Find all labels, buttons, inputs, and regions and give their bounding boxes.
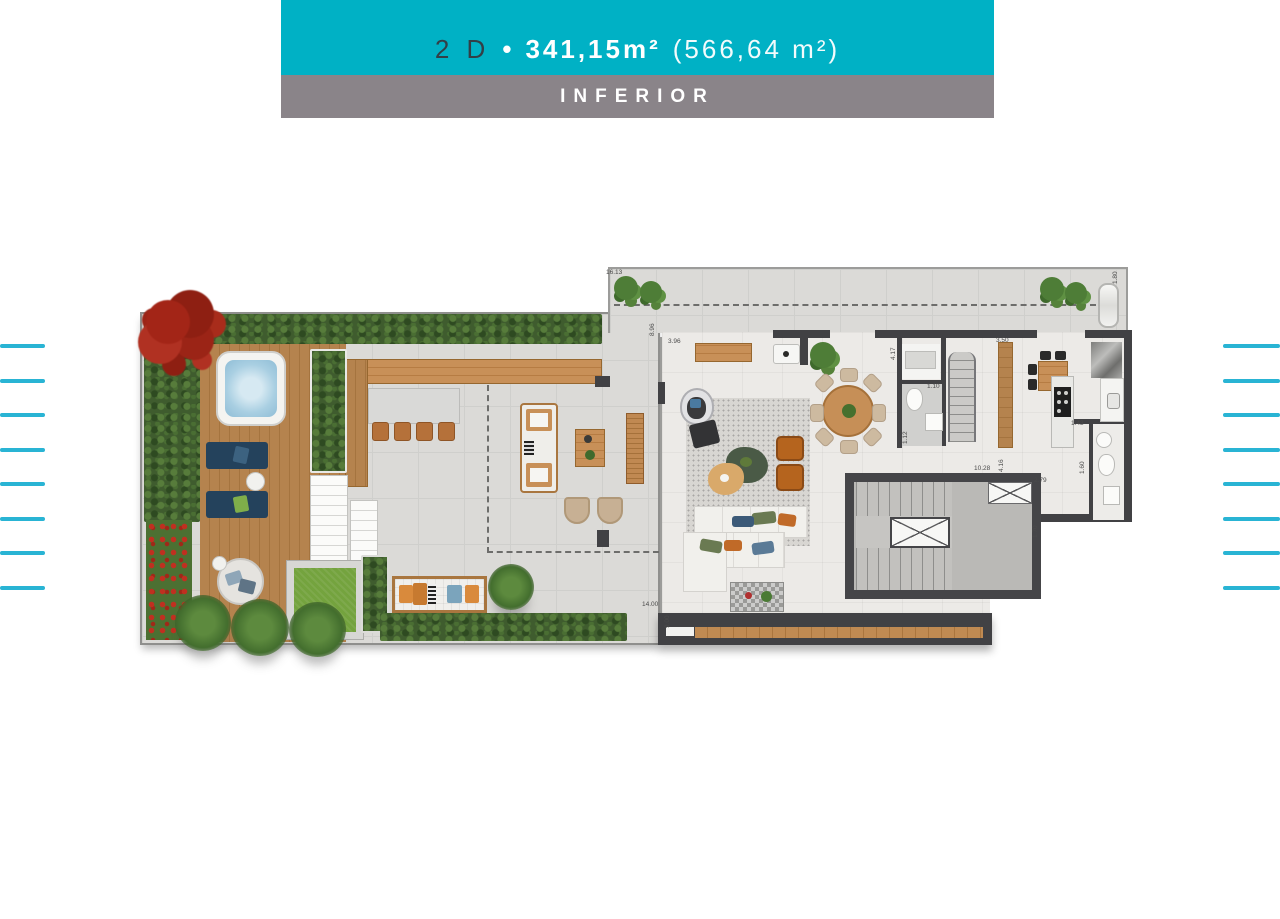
wall-stub	[597, 530, 609, 547]
wicker-chair	[597, 497, 623, 524]
floorplan: 16.13 8.96 3.96 4.17 1.10 1.12 3.50 1.80…	[0, 0, 1280, 919]
outdoor-dining-chair	[394, 422, 411, 441]
lounger-pillow	[232, 446, 249, 465]
indoor-plant	[810, 342, 836, 368]
red-tree	[146, 300, 190, 344]
hot-tub-water	[225, 360, 277, 417]
dimension-label: 1.60	[1080, 461, 1087, 474]
daybed-pillow	[465, 585, 479, 603]
stainless-counter	[1091, 342, 1122, 378]
dining-table-round	[822, 385, 874, 437]
dimension-label: 1.12	[903, 431, 910, 444]
side-table	[212, 556, 227, 571]
floorplan-page: 2 D • 341,15m² (566,64 m²) INFERIOR	[0, 0, 1280, 919]
stair-flight-upper	[856, 482, 952, 516]
hedge-bottom	[380, 613, 627, 641]
kitchen-chair	[1040, 351, 1051, 360]
stair-flight-lower	[856, 548, 952, 590]
elevator-shaft	[890, 517, 950, 548]
wc-sink-square	[1103, 486, 1120, 505]
dimension-label: 3.50	[996, 338, 1009, 345]
armchair	[776, 464, 804, 491]
terrace-bench	[1098, 283, 1119, 328]
fireplace	[773, 344, 800, 364]
sideboard	[695, 343, 752, 362]
wall-stub	[595, 376, 610, 387]
planter-hedge-1	[310, 349, 347, 473]
egg-chair-pillow	[690, 399, 701, 408]
wall	[773, 330, 830, 338]
kitchen-island	[1051, 376, 1074, 448]
dining-chair	[872, 404, 886, 422]
dining-chair	[840, 440, 858, 454]
sofa-tray	[524, 441, 534, 455]
glass-wall-left	[660, 337, 662, 615]
wall-right	[1124, 335, 1132, 522]
daybed-pillow	[399, 585, 413, 603]
dimension-label: 2.79	[1034, 478, 1047, 485]
dimension-label: 10.28	[974, 466, 990, 473]
sun-lounger	[206, 491, 268, 518]
dimension-label: 8.96	[650, 323, 657, 336]
wc-sink-round	[1096, 432, 1112, 448]
pergola-beam-top	[345, 359, 602, 384]
sofa-pillow	[751, 511, 776, 525]
nest-pillow	[238, 578, 257, 594]
stair-core	[845, 473, 1041, 599]
daybed-pillow	[413, 583, 427, 605]
daybed-pillow	[447, 585, 462, 603]
sink-counter	[1100, 378, 1124, 422]
shrub	[488, 564, 534, 610]
side-table	[246, 472, 265, 491]
pergola-beam-left	[345, 359, 368, 487]
burner	[1057, 400, 1061, 404]
patterned-console	[730, 582, 784, 612]
wall	[875, 330, 1037, 338]
palm-plant	[640, 281, 662, 303]
garden-strip-left	[144, 314, 200, 522]
projection-line-horizontal	[487, 551, 659, 553]
table-plant	[740, 457, 752, 467]
outdoor-sofa-chair	[526, 463, 552, 487]
bottom-deck-strip	[695, 627, 983, 638]
bottom-shelf	[666, 627, 694, 636]
kitchen-sink	[1107, 393, 1120, 409]
kitchen-chair	[1055, 351, 1066, 360]
burner	[1064, 400, 1068, 404]
table-plant	[585, 450, 595, 460]
closet	[902, 344, 940, 379]
wall-stub	[658, 382, 665, 404]
palm-plant	[614, 276, 638, 300]
hot-tub	[216, 351, 286, 426]
outdoor-bench	[626, 413, 644, 484]
projection-line-vertical	[487, 385, 489, 553]
armchair	[776, 436, 804, 461]
cooktop	[1054, 387, 1071, 417]
bowl	[584, 435, 592, 443]
dimension-label: 1.80	[1113, 271, 1120, 284]
closet-shelf	[905, 351, 936, 369]
cushion	[530, 468, 548, 482]
sun-lounger	[206, 442, 268, 469]
dimension-label: 3.96	[668, 339, 681, 346]
kitchen-chair	[1028, 379, 1037, 390]
outdoor-dining-chair	[372, 422, 389, 441]
console-decor	[745, 592, 752, 599]
sofa-pillow	[777, 513, 796, 527]
table-decor	[720, 474, 729, 482]
shrub	[289, 602, 346, 657]
outdoor-dining-chair	[438, 422, 455, 441]
dimension-label: 16.13	[606, 270, 622, 277]
dining-chair	[810, 404, 824, 422]
wc-toilet	[1098, 454, 1115, 476]
lounger-pillow	[233, 495, 250, 513]
dimension-label: 1.10	[927, 384, 940, 391]
dimension-label: 4.16	[999, 459, 1006, 472]
palm-plant	[1040, 277, 1064, 301]
daybed-pillow	[428, 584, 436, 604]
terrace-steps-1	[310, 475, 348, 569]
kitchen-chair	[1028, 364, 1037, 375]
centerpiece-plant	[842, 404, 856, 418]
outdoor-sofa-chair	[526, 409, 552, 431]
cushion	[530, 413, 548, 427]
outdoor-coffee-table	[575, 429, 605, 467]
wall	[800, 338, 808, 365]
dimension-label: 9.00	[665, 615, 672, 628]
sofa-pillow	[724, 540, 742, 551]
burner	[1057, 409, 1061, 413]
outdoor-dining-table	[368, 388, 460, 424]
shrub	[175, 595, 231, 651]
outdoor-dining-chair	[416, 422, 433, 441]
upper-terrace-projection-line	[614, 304, 1096, 306]
wicker-chair	[564, 497, 590, 524]
wc-room	[1093, 424, 1124, 520]
dimension-label: 1.43	[1071, 421, 1084, 428]
fireplace-burner	[783, 351, 789, 357]
burner	[1057, 391, 1061, 395]
staircase-upper	[948, 352, 976, 442]
dining-chair	[840, 368, 858, 382]
hedge-top	[202, 314, 602, 344]
dimension-label: 14.00	[642, 602, 658, 609]
burner	[1064, 391, 1068, 395]
daybed	[392, 576, 487, 613]
wall-bottom-band	[658, 613, 992, 645]
outdoor-sofa	[520, 403, 558, 493]
dimension-label: 1.70	[1033, 525, 1040, 538]
bathroom-sink	[925, 413, 943, 431]
service-shaft	[988, 482, 1032, 504]
kitchen-counter-wood	[998, 342, 1013, 448]
toilet	[906, 388, 923, 411]
shrub	[231, 599, 289, 656]
console-plant	[761, 591, 772, 602]
dimension-label: 4.17	[891, 347, 898, 360]
sofa-pillow	[732, 516, 754, 527]
palm-plant	[1065, 282, 1087, 304]
